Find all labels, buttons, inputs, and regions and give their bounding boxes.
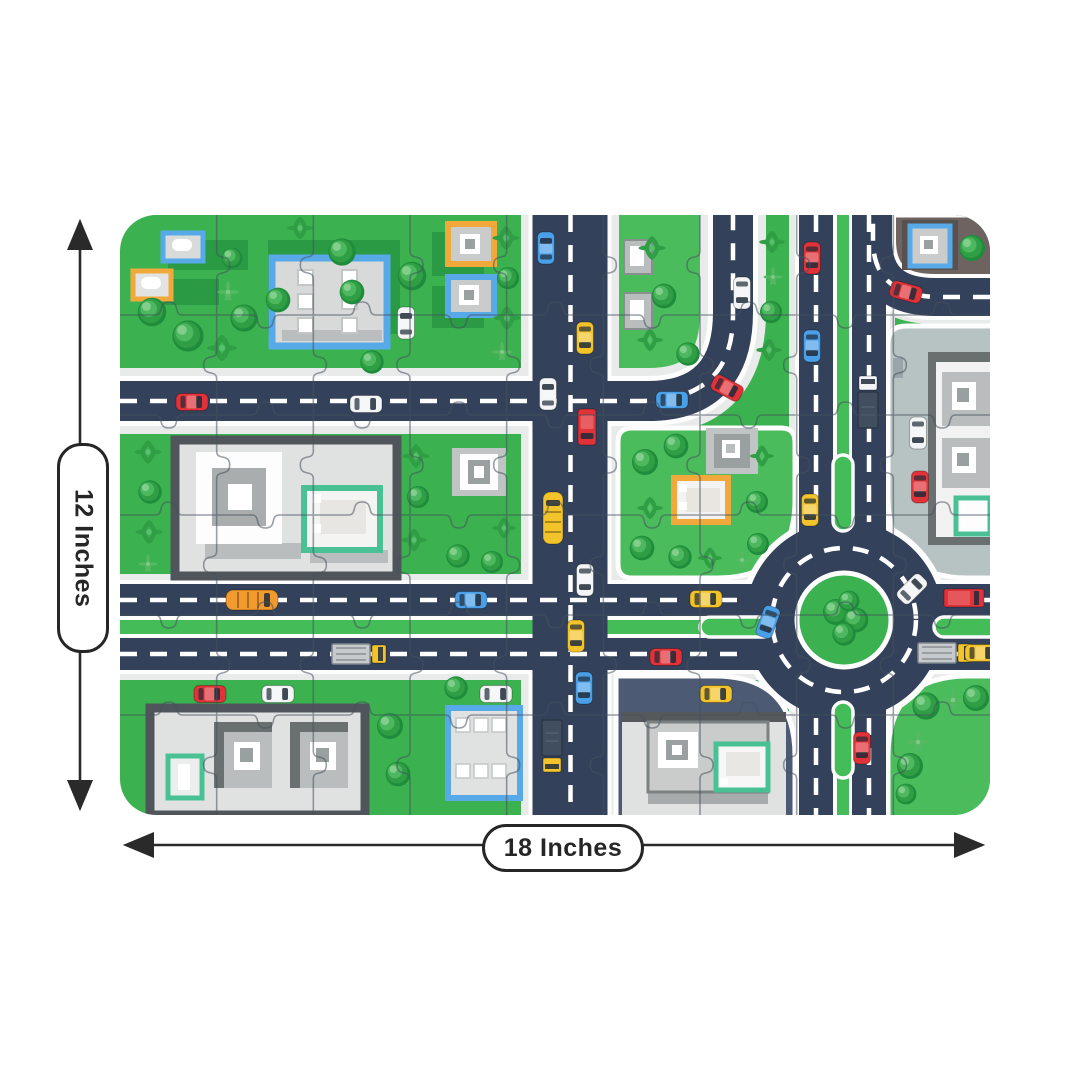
tree-bush bbox=[497, 267, 519, 289]
vehicle-car-red bbox=[650, 649, 682, 666]
tree-bush bbox=[676, 342, 699, 365]
tree-bush bbox=[377, 713, 403, 739]
height-dimension-text: 12 Inches bbox=[69, 489, 98, 607]
vehicle-car-white bbox=[350, 396, 382, 413]
parking-lot-blue bbox=[448, 708, 520, 798]
vehicle-truckL-yellow bbox=[918, 643, 972, 663]
vehicle-car-red bbox=[912, 471, 929, 503]
tree-bush bbox=[172, 320, 203, 351]
vehicle-truckD-white bbox=[858, 376, 878, 428]
building-orange-square-tl bbox=[448, 224, 494, 264]
vehicle-car-blue bbox=[576, 672, 593, 704]
vehicle-boxtruck-red bbox=[944, 589, 984, 607]
building-lot-ne bbox=[928, 352, 990, 545]
vehicle-car-yellow bbox=[577, 322, 594, 354]
tree-bush bbox=[760, 301, 782, 323]
tree-bush bbox=[630, 536, 655, 561]
vehicle-car-white bbox=[540, 378, 557, 410]
vehicle-car-yellow bbox=[690, 591, 722, 608]
tree-bush bbox=[266, 288, 291, 313]
tree-bush bbox=[444, 676, 467, 699]
width-dimension-label: 18 Inches bbox=[482, 824, 644, 872]
vehicle-car-white bbox=[910, 417, 927, 449]
vehicle-truckD-yellow bbox=[542, 720, 562, 772]
vehicle-car-yellow bbox=[965, 645, 997, 662]
width-dimension-text: 18 Inches bbox=[504, 834, 622, 863]
vehicle-bus-yellow bbox=[543, 492, 563, 544]
tree-bush bbox=[832, 622, 855, 645]
tree-bush bbox=[959, 235, 985, 261]
vehicle-car-white bbox=[398, 307, 415, 339]
vehicle-truckL-yellow bbox=[332, 644, 386, 664]
tree-bush bbox=[963, 685, 989, 711]
tree-bush bbox=[360, 350, 383, 373]
vehicle-car-blue bbox=[804, 330, 821, 362]
tree-bush bbox=[747, 533, 769, 555]
building-blue-square-tl bbox=[448, 277, 494, 315]
building-lot-bottom-center bbox=[622, 712, 786, 815]
tree-bush bbox=[632, 449, 658, 475]
vehicle-car-yellow bbox=[802, 494, 819, 526]
tree-bush bbox=[481, 551, 503, 573]
vehicle-car-blue bbox=[538, 232, 555, 264]
puzzle-mat-illustration bbox=[0, 0, 1080, 1080]
tree-bush bbox=[668, 545, 691, 568]
tree-bush bbox=[446, 544, 469, 567]
tree-bush bbox=[839, 591, 860, 612]
tree-bush bbox=[138, 480, 161, 503]
vehicle-car-yellow bbox=[568, 620, 585, 652]
vehicle-bus-orange bbox=[226, 590, 278, 610]
tree-bush bbox=[664, 434, 689, 459]
vehicle-car-red bbox=[854, 732, 871, 764]
tree-bush bbox=[230, 304, 257, 331]
tree-bush bbox=[328, 238, 355, 265]
tree-bush bbox=[652, 284, 677, 309]
vehicle-car-yellow bbox=[700, 686, 732, 703]
tree-bush bbox=[398, 262, 427, 291]
tree-bush bbox=[138, 298, 167, 327]
tree-bush bbox=[340, 280, 365, 305]
building-lot-left-middle bbox=[175, 440, 397, 576]
building-lot-bottom-left bbox=[150, 708, 365, 815]
building-gray-pad-nw bbox=[706, 428, 758, 474]
vehicle-car-blue bbox=[656, 392, 688, 409]
height-dimension-label: 12 Inches bbox=[57, 443, 109, 653]
product-dimension-image: 12 Inches 18 Inches bbox=[0, 0, 1080, 1080]
tree-bush bbox=[896, 784, 917, 805]
vehicle-car-red bbox=[194, 686, 226, 703]
vehicle-car-white bbox=[262, 686, 294, 703]
vehicle-car-blue bbox=[455, 592, 487, 609]
building-blue-topright bbox=[910, 226, 950, 266]
vehicle-car-red bbox=[176, 394, 208, 411]
